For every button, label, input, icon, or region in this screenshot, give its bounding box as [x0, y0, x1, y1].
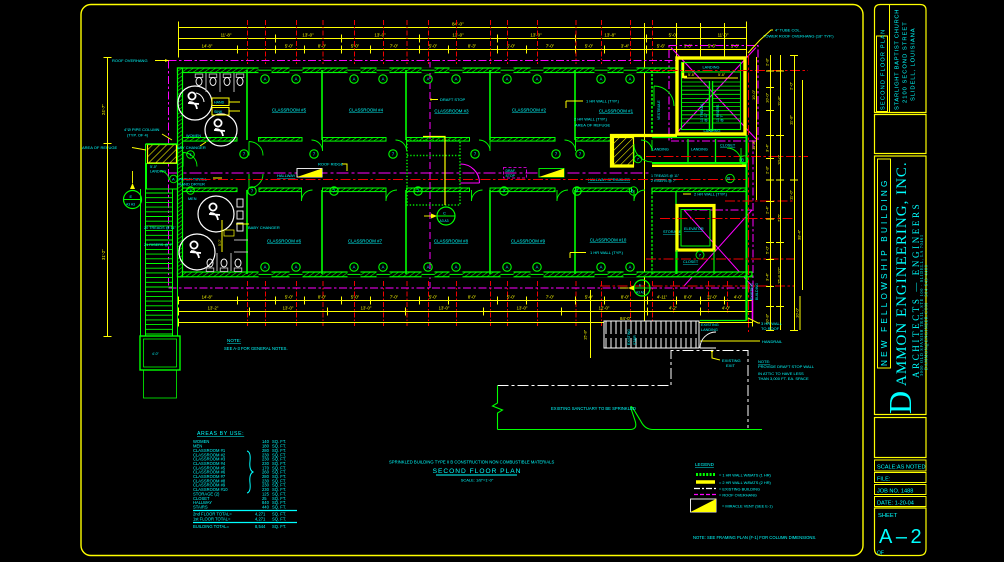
- svg-text:4'-2": 4'-2": [669, 306, 678, 311]
- svg-text:DAMMON@ENGINEER.COM · 504-643-: DAMMON@ENGINEER.COM · 504-643-4400: [924, 264, 929, 370]
- svg-text:14'-8": 14'-8": [202, 44, 213, 49]
- svg-text:D: D: [882, 391, 918, 414]
- svg-text:5'-0": 5'-0": [351, 44, 360, 49]
- svg-text:84'-0": 84'-0": [620, 316, 632, 321]
- svg-text:A3 A3: A3 A3: [636, 291, 645, 295]
- svg-text:DRAF.: DRAF.: [506, 169, 516, 173]
- svg-text:AREAS BY USE:: AREAS BY USE:: [197, 431, 244, 437]
- svg-text:11'-8": 11'-8": [777, 96, 782, 106]
- svg-text:7'-0": 7'-0": [390, 44, 399, 49]
- svg-text:LEGEND: LEGEND: [695, 462, 715, 467]
- svg-text:11'-0": 11'-0": [789, 190, 794, 200]
- svg-text:CLASSROOM #1: CLASSROOM #1: [599, 109, 634, 114]
- svg-text:A: A: [172, 177, 175, 182]
- svg-text:C: C: [443, 211, 446, 216]
- svg-text:SQ. FT.: SQ. FT.: [272, 516, 286, 521]
- svg-text:A: A: [629, 77, 632, 82]
- svg-text:5'-0": 5'-0": [765, 245, 770, 254]
- svg-text:10'-0": 10'-0": [765, 92, 770, 103]
- svg-text:4'-0": 4'-0": [722, 306, 731, 311]
- svg-text:1st FLOOR TOTAL=: 1st FLOOR TOTAL=: [193, 516, 231, 521]
- svg-text:B: B: [727, 176, 730, 181]
- svg-text:A: A: [536, 77, 539, 82]
- svg-text:= MIRACLE VENT (SEE E-1): = MIRACLE VENT (SEE E-1): [722, 504, 773, 509]
- svg-text:A: A: [295, 265, 298, 270]
- svg-text:NOTE:: NOTE:: [227, 338, 241, 343]
- svg-text:5'-0": 5'-0": [429, 44, 438, 49]
- svg-text:24'-7": 24'-7": [101, 104, 106, 115]
- svg-text:SLIDELL, LOUISIANA: SLIDELL, LOUISIANA: [911, 27, 917, 101]
- svg-text:13'-2": 13'-2": [208, 306, 219, 311]
- svg-text:31'-2": 31'-2": [101, 249, 106, 260]
- svg-text:LANDING: LANDING: [652, 148, 669, 152]
- svg-text:3'-4": 3'-4": [765, 143, 770, 152]
- svg-text:HAND DRYER: HAND DRYER: [179, 182, 205, 187]
- svg-text:13'-0": 13'-0": [439, 306, 450, 311]
- svg-text:11'-0": 11'-0": [718, 33, 729, 38]
- svg-text:CLASSROOM #10: CLASSROOM #10: [590, 238, 627, 243]
- svg-text:20 TREADS @ 11": 20 TREADS @ 11": [144, 226, 177, 230]
- svg-text:2 HR WALL (TYP.): 2 HR WALL (TYP.): [574, 117, 608, 122]
- svg-text:11'-8": 11'-8": [221, 33, 232, 38]
- svg-text:5'-0": 5'-0": [507, 44, 516, 49]
- svg-text:@ 11": @ 11": [704, 112, 708, 122]
- svg-text:8'-0": 8'-0": [318, 295, 327, 300]
- svg-text:8,544: 8,544: [255, 524, 266, 529]
- svg-text:EXISTING: EXISTING: [701, 323, 719, 327]
- svg-text:CLASSROOM #5: CLASSROOM #5: [272, 108, 307, 113]
- svg-text:13'-0": 13'-0": [530, 33, 542, 38]
- svg-text:FILE:: FILE:: [877, 477, 891, 483]
- svg-text:1 HR WALL (TYP.): 1 HR WALL (TYP.): [586, 99, 620, 104]
- svg-text:CLASSROOM #9: CLASSROOM #9: [511, 239, 546, 244]
- svg-text:A3 A3: A3 A3: [440, 219, 449, 223]
- svg-text:A: A: [455, 77, 458, 82]
- svg-text:ROOF RIDGE: ROOF RIDGE: [318, 162, 344, 167]
- svg-text:ROOF OVERHANG: ROOF OVERHANG: [112, 58, 148, 63]
- svg-text:4,271: 4,271: [255, 516, 266, 521]
- svg-text:8'-0": 8'-0": [684, 295, 693, 300]
- svg-text:A: A: [427, 265, 430, 270]
- svg-text:NEW FELLOWSHIP BUILDING: NEW FELLOWSHIP BUILDING: [880, 177, 889, 366]
- svg-text:EXISTING SANCTUARY TO BE SPRIN: EXISTING SANCTUARY TO BE SPRINKLED: [551, 406, 636, 411]
- svg-text:38'-4": 38'-4": [797, 229, 802, 240]
- svg-text:2'-4": 2'-4": [765, 205, 770, 214]
- svg-text:A: A: [382, 77, 385, 82]
- svg-text:EXIT: EXIT: [726, 363, 735, 368]
- svg-text:2100 SECOND STREET: 2100 SECOND STREET: [903, 21, 909, 103]
- svg-text:A: A: [536, 265, 539, 270]
- svg-text:A: A: [506, 77, 509, 82]
- svg-text:13'-0": 13'-0": [452, 33, 464, 38]
- svg-text:A: A: [382, 265, 385, 270]
- svg-text:CLASSROOM #7: CLASSROOM #7: [348, 239, 383, 244]
- svg-text:SINK: SINK: [214, 110, 223, 114]
- svg-text:AMMON ENGINEERING, INC.: AMMON ENGINEERING, INC.: [894, 161, 910, 386]
- svg-text:LANDING: LANDING: [691, 148, 708, 152]
- svg-text:BUILDING TOTAL=: BUILDING TOTAL=: [193, 524, 230, 529]
- svg-text:VESTIBULE: VESTIBULE: [657, 100, 661, 120]
- svg-text:13'-0": 13'-0": [283, 306, 294, 311]
- svg-text:STARLIGHT BAPTIST CHURCH: STARLIGHT BAPTIST CHURCH: [895, 9, 901, 110]
- svg-text:7'-0": 7'-0": [546, 295, 555, 300]
- svg-text:JOB NO. 1488: JOB NO. 1488: [877, 489, 913, 495]
- svg-text:84'-0": 84'-0": [452, 22, 464, 27]
- svg-text:@ 7": @ 7": [720, 114, 724, 122]
- svg-text:7'-0": 7'-0": [390, 295, 399, 300]
- svg-text:5'-0": 5'-0": [285, 295, 294, 300]
- svg-text:15'-8": 15'-8": [583, 329, 588, 340]
- svg-text:BABY CHANGER: BABY CHANGER: [248, 225, 280, 230]
- svg-text:OF: OF: [877, 551, 884, 557]
- svg-text:CLASSROOM #8: CLASSROOM #8: [434, 239, 469, 244]
- svg-text:A: A: [455, 265, 458, 270]
- svg-text:5'-6": 5'-6": [718, 73, 726, 77]
- svg-text:5'-0": 5'-0": [429, 295, 438, 300]
- svg-text:A: A: [264, 77, 267, 82]
- svg-text:SQ. FT.: SQ. FT.: [272, 524, 286, 529]
- svg-text:3'-4": 3'-4": [621, 44, 630, 49]
- svg-text:CLOSET: CLOSET: [720, 144, 736, 148]
- svg-text:SECOND FLOOR PLAN: SECOND FLOOR PLAN: [433, 468, 522, 475]
- svg-text:STAIRS: STAIRS: [193, 505, 208, 510]
- svg-text:A: A: [295, 77, 298, 82]
- svg-text:10'-0": 10'-0": [777, 154, 782, 165]
- svg-text:SECOND FLOOR PLAN: SECOND FLOOR PLAN: [881, 29, 887, 110]
- svg-text:SCALE: 1/8"=1'-0": SCALE: 1/8"=1'-0": [461, 478, 494, 483]
- svg-text:= ROOF OVERHANG: = ROOF OVERHANG: [719, 493, 757, 498]
- svg-text:1 HR WALL (TYP.): 1 HR WALL (TYP.): [590, 250, 624, 255]
- svg-text:5'-0": 5'-0": [507, 295, 516, 300]
- svg-text:4'-0": 4'-0": [734, 295, 743, 300]
- svg-text:4" TUBE COL.: 4" TUBE COL.: [775, 28, 801, 33]
- svg-text:SEE A-3 FOR GENERAL NOTES.: SEE A-3 FOR GENERAL NOTES.: [224, 346, 288, 351]
- svg-text:4"Ø PIPE COLUMN: 4"Ø PIPE COLUMN: [124, 127, 160, 132]
- svg-text:AREA OF REFUGE: AREA OF REFUGE: [575, 123, 610, 128]
- svg-text:2'-8": 2'-8": [765, 165, 770, 174]
- svg-text:NOTE: SEE FRAMING PLAN (F-1) F: NOTE: SEE FRAMING PLAN (F-1) FOR COLUMN …: [693, 535, 816, 540]
- svg-text:A: A: [506, 265, 509, 270]
- svg-text:BUILDING: BUILDING: [755, 283, 759, 300]
- svg-text:CLASSROOM #6: CLASSROOM #6: [267, 239, 302, 244]
- svg-text:HAND: HAND: [214, 101, 225, 105]
- svg-text:5'-0": 5'-0": [585, 44, 594, 49]
- svg-text:2'-0": 2'-0": [789, 81, 794, 90]
- svg-text:7'-0": 7'-0": [546, 44, 555, 49]
- svg-text:SPRINKLED BUILDING TYPE II B C: SPRINKLED BUILDING TYPE II B CONSTRUCTIO…: [389, 460, 554, 465]
- svg-text:SQ. FT.: SQ. FT.: [272, 505, 286, 510]
- svg-text:5'-0": 5'-0": [285, 44, 294, 49]
- svg-text:10'-0": 10'-0": [751, 89, 756, 100]
- svg-text:CLASSROOM #2: CLASSROOM #2: [512, 108, 547, 113]
- svg-text:15'-8 1/2": 15'-8 1/2": [777, 267, 782, 284]
- svg-text:AREA OF REFUGE: AREA OF REFUGE: [82, 145, 117, 150]
- svg-text:CLASSROOM #3: CLASSROOM #3: [434, 109, 469, 114]
- svg-text:1 TREADS @ 11": 1 TREADS @ 11": [651, 174, 680, 178]
- svg-text:14'-8": 14'-8": [202, 295, 213, 300]
- svg-text:LANDING: LANDING: [704, 129, 721, 133]
- svg-text:8'-0": 8'-0": [468, 295, 477, 300]
- svg-text:2 RISERS @ 7": 2 RISERS @ 7": [651, 179, 677, 183]
- svg-text:21 RISERS @ 7": 21 RISERS @ 7": [144, 243, 173, 247]
- svg-text:4'-0": 4'-0": [152, 352, 160, 356]
- svg-text:B: B: [741, 158, 744, 163]
- svg-text:THAN 3,000 FT. EA. SPACE: THAN 3,000 FT. EA. SPACE: [758, 376, 809, 381]
- svg-text:11'-8": 11'-8": [751, 140, 756, 150]
- svg-text:5'-6": 5'-6": [688, 73, 696, 77]
- svg-text:A: A: [264, 265, 267, 270]
- svg-text:5'-0": 5'-0": [218, 238, 222, 246]
- svg-text:13'-0": 13'-0": [517, 306, 528, 311]
- svg-text:EXISTING: EXISTING: [750, 283, 754, 300]
- svg-text:13'-0": 13'-0": [374, 33, 386, 38]
- svg-text:8'-0": 8'-0": [318, 44, 327, 49]
- svg-text:7'-5": 7'-5": [777, 213, 782, 222]
- svg-text:A: A: [600, 77, 603, 82]
- svg-text:A: A: [427, 77, 430, 82]
- svg-text:STOP: STOP: [506, 174, 516, 178]
- svg-text:12'-0": 12'-0": [599, 306, 610, 311]
- svg-text:A: A: [600, 265, 603, 270]
- svg-text:5'-0": 5'-0": [150, 165, 158, 169]
- svg-text:DRAFT STOP: DRAFT STOP: [440, 97, 466, 102]
- svg-text:13'-0": 13'-0": [361, 306, 372, 311]
- svg-text:5'-0": 5'-0": [585, 295, 594, 300]
- svg-text:5'-0": 5'-0": [351, 295, 360, 300]
- svg-text:STORAGE: STORAGE: [663, 230, 682, 234]
- svg-text:MEN: MEN: [188, 197, 197, 201]
- svg-text:= 1 HR WALL W/BATS (1 HR): = 1 HR WALL W/BATS (1 HR): [719, 473, 772, 478]
- svg-text:B: B: [631, 189, 634, 194]
- svg-text:440: 440: [262, 505, 270, 510]
- svg-text:8'-3": 8'-3": [468, 44, 477, 49]
- svg-text:ELEVATOR: ELEVATOR: [684, 227, 704, 231]
- svg-text:SHEET: SHEET: [878, 513, 898, 519]
- svg-text:A: A: [629, 265, 632, 270]
- svg-text:= EXISTING BUILDING: = EXISTING BUILDING: [719, 487, 760, 492]
- svg-text:A: A: [353, 265, 356, 270]
- svg-text:SCALE:AS NOTED: SCALE:AS NOTED: [877, 465, 926, 471]
- svg-text:CLOSET: CLOSET: [683, 260, 699, 264]
- svg-text:E: E: [130, 194, 133, 199]
- svg-text:3'-4": 3'-4": [765, 272, 770, 281]
- svg-text:WOMEN: WOMEN: [186, 134, 201, 138]
- svg-text:(TYP. OF 4): (TYP. OF 4): [127, 133, 149, 138]
- svg-text:STAIR: STAIR: [633, 335, 637, 345]
- svg-text:EXISTING: EXISTING: [627, 329, 631, 345]
- svg-text:= 2 HR WALL W/BATS (2 HR): = 2 HR WALL W/BATS (2 HR): [719, 480, 772, 485]
- svg-text:11'-8": 11'-8": [789, 115, 794, 125]
- svg-text:11'-0": 11'-0": [707, 295, 718, 300]
- svg-text:13'-0": 13'-0": [302, 33, 314, 38]
- svg-text:10'-0": 10'-0": [795, 307, 800, 318]
- svg-text:A: A: [353, 77, 356, 82]
- svg-text:TO ROOF: TO ROOF: [761, 326, 780, 331]
- svg-text:LANDING: LANDING: [701, 328, 718, 332]
- svg-text:A3 A3: A3 A3: [126, 203, 135, 207]
- svg-text:2'-8": 2'-8": [765, 57, 770, 66]
- svg-text:13'-8": 13'-8": [604, 33, 616, 38]
- svg-text:DATE: 1-20-04: DATE: 1-20-04: [877, 501, 914, 507]
- svg-text:TOWER ROOF OVERHANG (18" TYP.): TOWER ROOF OVERHANG (18" TYP.): [763, 34, 834, 39]
- svg-text:CLASSROOM #4: CLASSROOM #4: [349, 108, 384, 113]
- svg-text:A–2: A–2: [879, 526, 925, 548]
- svg-text:HANDRAIL: HANDRAIL: [762, 339, 783, 344]
- svg-text:HALLWAY: HALLWAY: [277, 173, 296, 178]
- svg-text:8'-0": 8'-0": [621, 295, 630, 300]
- svg-text:2 HR WALL (TYP.): 2 HR WALL (TYP.): [694, 192, 728, 197]
- svg-text:5'-6": 5'-6": [657, 44, 666, 49]
- svg-text:4'-11": 4'-11": [657, 295, 668, 300]
- svg-text:PROVIDE DRAFT STOP WALL: PROVIDE DRAFT STOP WALL: [758, 364, 815, 369]
- svg-text:LANDING: LANDING: [703, 66, 720, 70]
